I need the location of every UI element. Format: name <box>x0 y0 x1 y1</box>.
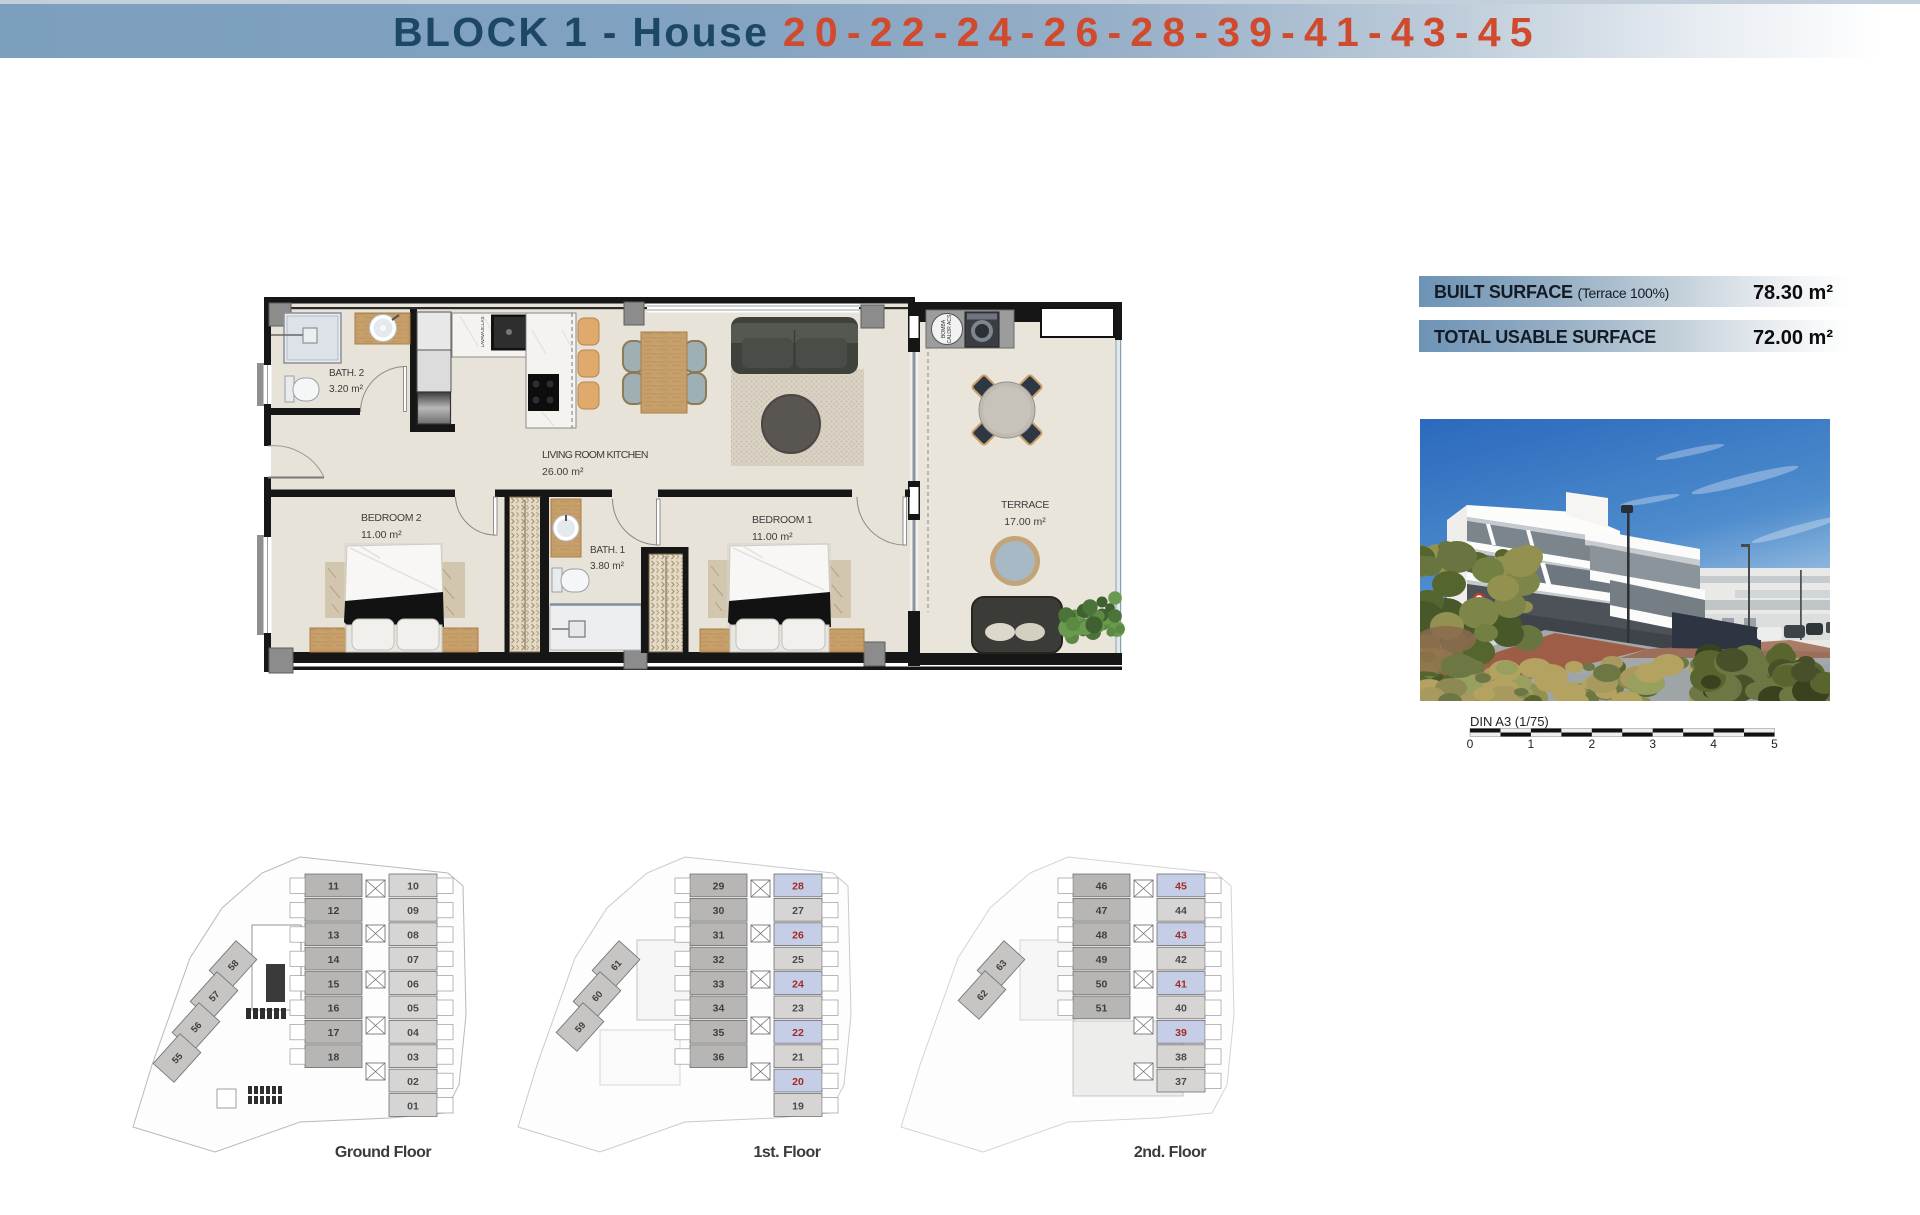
svg-text:23: 23 <box>792 1003 804 1015</box>
svg-text:40: 40 <box>1175 1003 1187 1015</box>
svg-text:22: 22 <box>792 1027 804 1039</box>
svg-text:01: 01 <box>407 1100 419 1112</box>
svg-text:BATH. 1: BATH. 1 <box>590 545 626 556</box>
svg-text:37: 37 <box>1175 1076 1187 1088</box>
svg-text:CALOR ACS: CALOR ACS <box>947 314 953 343</box>
svg-text:TERRACE: TERRACE <box>1001 499 1049 511</box>
svg-text:3: 3 <box>1649 737 1656 751</box>
svg-text:21: 21 <box>792 1052 804 1064</box>
svg-text:24: 24 <box>792 978 804 990</box>
svg-text:4: 4 <box>1710 737 1717 751</box>
svg-text:46: 46 <box>1096 881 1108 893</box>
svg-text:26.00 m²: 26.00 m² <box>542 466 584 478</box>
svg-text:27: 27 <box>792 905 804 917</box>
svg-text:11.00 m²: 11.00 m² <box>752 531 793 543</box>
svg-text:07: 07 <box>407 954 419 966</box>
svg-text:1st. Floor: 1st. Floor <box>753 1144 820 1161</box>
svg-text:18: 18 <box>328 1052 340 1064</box>
svg-text:32: 32 <box>713 954 725 966</box>
svg-text:1: 1 <box>1528 737 1535 751</box>
svg-text:35: 35 <box>713 1027 725 1039</box>
svg-text:78.30 m²: 78.30 m² <box>1753 282 1833 304</box>
svg-text:38: 38 <box>1175 1052 1187 1064</box>
svg-text:42: 42 <box>1175 954 1187 966</box>
svg-text:2: 2 <box>1588 737 1595 751</box>
svg-text:26: 26 <box>792 930 804 942</box>
svg-text:20: 20 <box>792 1076 804 1088</box>
svg-text:19: 19 <box>792 1100 804 1112</box>
svg-text:50: 50 <box>1096 978 1108 990</box>
svg-text:08: 08 <box>407 930 419 942</box>
svg-text:17.00 m²: 17.00 m² <box>1004 516 1046 528</box>
svg-text:BEDROOM 1: BEDROOM 1 <box>752 514 813 526</box>
svg-text:30: 30 <box>713 905 725 917</box>
svg-text:11: 11 <box>328 881 339 893</box>
svg-text:0: 0 <box>1467 737 1474 751</box>
svg-text:39: 39 <box>1175 1027 1187 1039</box>
svg-text:05: 05 <box>407 1003 419 1015</box>
svg-text:BUILT SURFACE (Terrace 100%): BUILT SURFACE (Terrace 100%) <box>1434 282 1669 302</box>
svg-text:16: 16 <box>328 1003 340 1015</box>
svg-text:3.80 m²: 3.80 m² <box>590 561 625 572</box>
svg-text:09: 09 <box>407 905 419 917</box>
svg-text:TOTAL USABLE SURFACE: TOTAL USABLE SURFACE <box>1434 327 1656 347</box>
svg-text:DIN A3 (1/75): DIN A3 (1/75) <box>1470 714 1549 729</box>
svg-text:48: 48 <box>1096 930 1108 942</box>
svg-text:31: 31 <box>713 930 725 942</box>
svg-text:25: 25 <box>792 954 804 966</box>
svg-text:BATH. 2: BATH. 2 <box>329 368 365 379</box>
svg-text:17: 17 <box>328 1027 340 1039</box>
svg-text:06: 06 <box>407 978 419 990</box>
svg-text:10: 10 <box>407 881 419 893</box>
svg-text:3.20 m²: 3.20 m² <box>329 384 364 395</box>
svg-text:43: 43 <box>1175 930 1187 942</box>
svg-text:45: 45 <box>1175 881 1187 893</box>
svg-text:47: 47 <box>1096 905 1108 917</box>
svg-text:51: 51 <box>1096 1003 1108 1015</box>
svg-text:04: 04 <box>407 1027 419 1039</box>
svg-text:41: 41 <box>1175 978 1187 990</box>
svg-text:36: 36 <box>713 1052 725 1064</box>
svg-text:28: 28 <box>792 881 804 893</box>
svg-text:13: 13 <box>328 930 340 942</box>
svg-text:72.00 m²: 72.00 m² <box>1753 327 1833 349</box>
svg-text:2nd. Floor: 2nd. Floor <box>1134 1144 1207 1161</box>
svg-text:14: 14 <box>328 954 340 966</box>
svg-text:29: 29 <box>713 881 725 893</box>
svg-text:LAVAVAJILLAS: LAVAVAJILLAS <box>480 317 485 348</box>
svg-text:5: 5 <box>1771 737 1778 751</box>
svg-text:BEDROOM 2: BEDROOM 2 <box>361 512 422 524</box>
svg-text:33: 33 <box>713 978 725 990</box>
svg-text:34: 34 <box>713 1003 725 1015</box>
svg-text:Ground Floor: Ground Floor <box>335 1144 431 1161</box>
svg-text:02: 02 <box>407 1076 419 1088</box>
svg-text:12: 12 <box>328 905 340 917</box>
svg-text:15: 15 <box>328 978 340 990</box>
svg-text:11.00 m²: 11.00 m² <box>361 529 402 541</box>
svg-text:49: 49 <box>1096 954 1108 966</box>
svg-text:LIVING ROOM KITCHEN: LIVING ROOM KITCHEN <box>542 449 648 461</box>
svg-text:44: 44 <box>1175 905 1187 917</box>
svg-text:03: 03 <box>407 1052 419 1064</box>
